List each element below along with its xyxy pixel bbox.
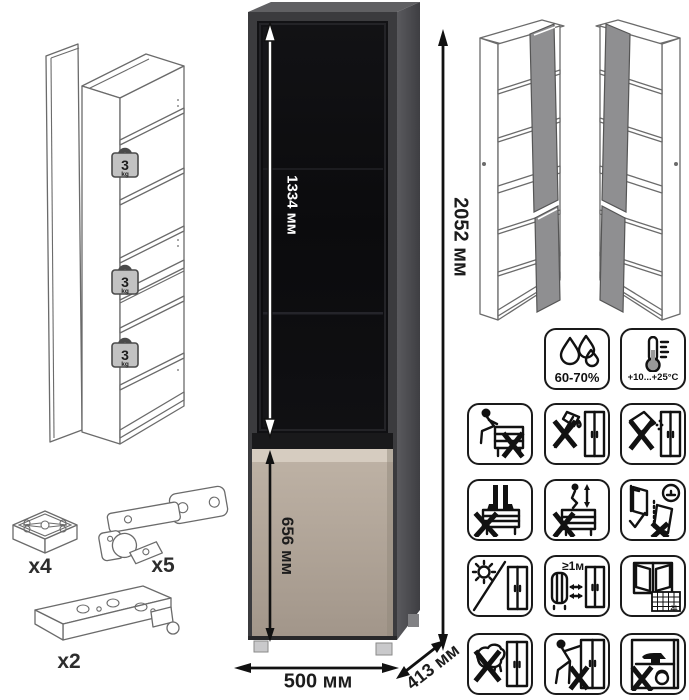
shelf-load-badge: 3 kg [112, 340, 138, 368]
wall-anchor-tile [620, 479, 686, 541]
no-climbing-tile [544, 479, 610, 541]
no-climbing-icon [548, 483, 606, 537]
ventilation-tile: 21 [620, 555, 686, 617]
variant-right [596, 20, 680, 320]
no-wet-cloth-tile [467, 633, 533, 695]
total-height-label: 2052 мм [449, 197, 472, 277]
cabinet-side-face [397, 2, 420, 640]
ventilation-icon: 21 [624, 559, 682, 613]
temperature-tile: +10...+25°C [620, 328, 686, 390]
total-height-arrow [438, 29, 448, 651]
door-gap [252, 433, 393, 449]
hinge-count: x5 [151, 554, 174, 578]
no-sharp-tools-icon [548, 407, 606, 461]
svg-text:kg: kg [121, 288, 129, 295]
rail-count: x2 [57, 650, 80, 674]
anvil-glyph [642, 653, 666, 663]
no-abrasives-tile [620, 403, 686, 465]
temperature-label: +10...+25°C [628, 373, 679, 383]
wireframe-open-cabinet: 3 kg 3 kg 3 kg [18, 40, 218, 452]
foot-glide-hardware [5, 495, 85, 557]
humidity-icon [548, 334, 606, 370]
calendar-day: 21 [670, 605, 678, 612]
no-heavy-load-tile [620, 633, 686, 695]
calendar-glyph: 21 [652, 592, 680, 612]
glass-door [257, 21, 388, 433]
no-sitting-tile [467, 403, 533, 465]
thermometer-icon [624, 336, 682, 372]
no-sunlight-tile [467, 555, 533, 617]
rendered-cabinet [230, 0, 470, 700]
no-standing-icon [471, 483, 529, 537]
lower-door [252, 462, 393, 636]
no-abrasives-icon [624, 407, 682, 461]
shelf-load-badge: 3 kg [112, 267, 138, 295]
no-heavy-load-icon [624, 637, 682, 691]
svg-text:kg: kg [121, 361, 129, 368]
foot-count: x4 [28, 555, 51, 579]
lower-door-height-label: 656 мм [277, 517, 297, 575]
humidity-label: 60-70% [555, 371, 600, 384]
variant-left [480, 20, 564, 320]
cabinet-foot [376, 643, 392, 655]
heat-distance-label: ≥1м [562, 559, 584, 573]
no-dragging-tile [544, 633, 610, 695]
cabinet-foot [254, 641, 268, 652]
shelf-load-badge: 3 kg [112, 150, 138, 178]
door-orientation-variants [472, 4, 688, 330]
heat-distance-icon: ≥1м [548, 559, 606, 613]
load-unit: kg [121, 171, 129, 178]
assembly-diagram: 3 kg 3 kg 3 kg [0, 0, 689, 700]
width-label: 500 мм [284, 671, 353, 694]
heat-distance-tile: ≥1м [544, 555, 610, 617]
humidity-tile: 60-70% [544, 328, 610, 390]
care-icon-grid: 60-70% +10...+25°C [467, 328, 689, 700]
no-dragging-icon [548, 637, 606, 691]
no-sunlight-icon [471, 559, 529, 613]
rail-hardware [25, 578, 185, 683]
cabinet-foot [408, 614, 419, 627]
glass-height-label: 1334 мм [284, 175, 301, 235]
cabinet-top-face [248, 2, 420, 12]
no-sharp-tools-tile [544, 403, 610, 465]
no-sitting-icon [471, 407, 529, 461]
no-wet-cloth-icon [471, 637, 529, 691]
wall-anchor-icon [624, 483, 682, 537]
no-standing-tile [467, 479, 533, 541]
